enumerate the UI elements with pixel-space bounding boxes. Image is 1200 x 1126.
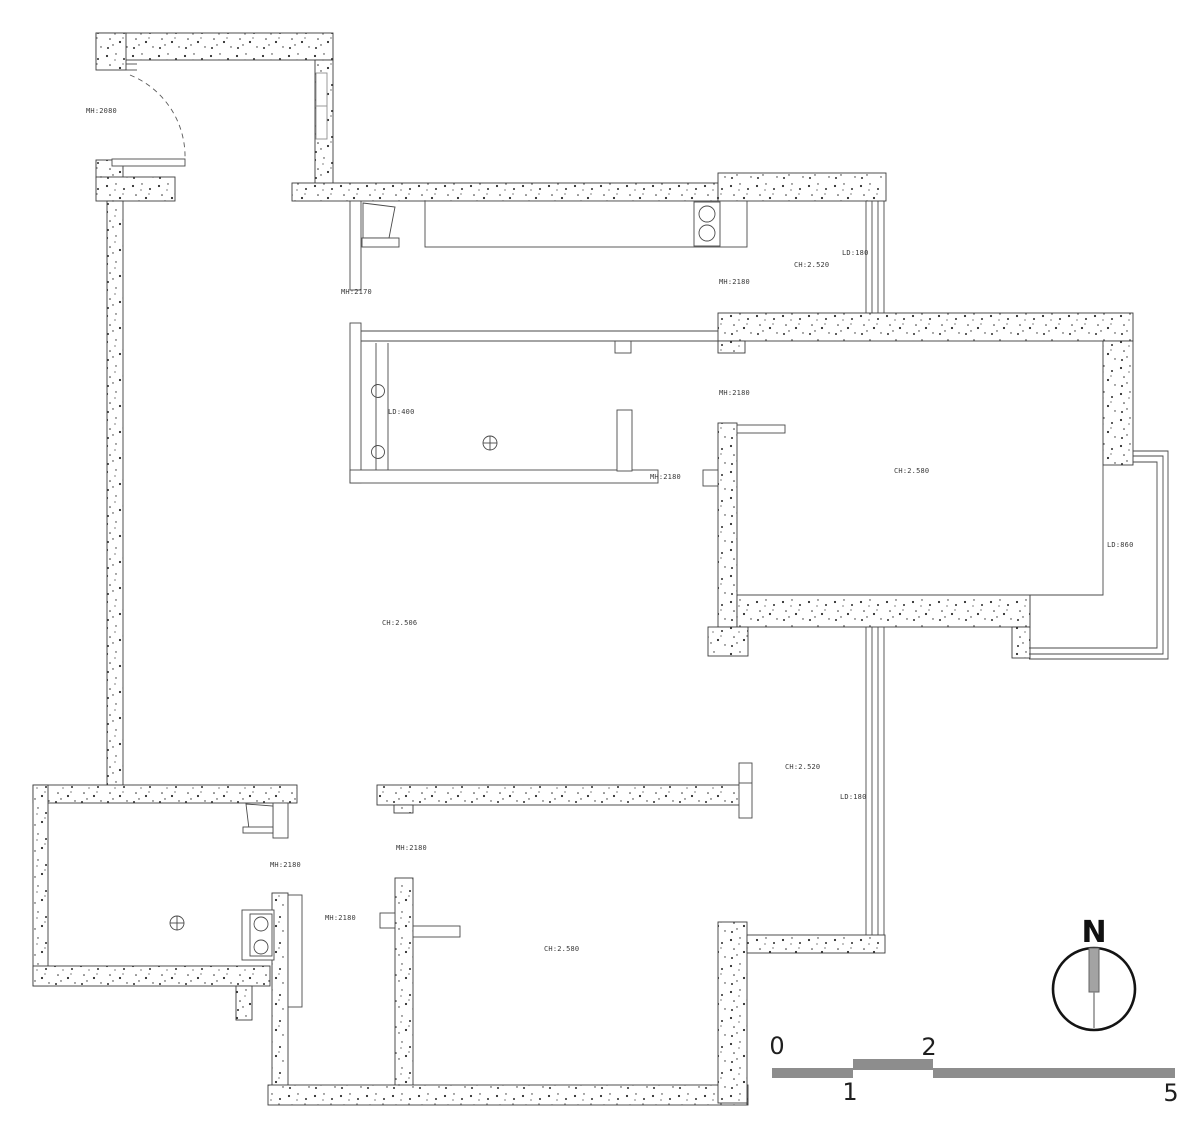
scale-tick-2: 2 — [921, 1035, 936, 1059]
wall-segment — [394, 805, 413, 813]
window-bottom — [866, 627, 884, 935]
bathroom-wall-tab — [615, 341, 631, 353]
bedroom-door-jamb — [703, 470, 718, 486]
bathroom-wall-stub — [617, 410, 632, 471]
kitchen-door-jamb — [350, 201, 361, 290]
compass-pointer — [1089, 948, 1099, 992]
walls-layer — [33, 33, 1133, 1105]
floor-plan-canvas: MH:2080 MH:2170 CH:2.520 LD:180 MH:2180 … — [0, 0, 1200, 1126]
annotation-dining-ceiling-bottom: CH:2.520 — [785, 763, 820, 771]
tall-cabinet — [288, 895, 302, 1007]
scale-tick-0: 0 — [769, 1034, 784, 1058]
annotation-bedroom-ceiling: CH:2.580 — [894, 467, 929, 475]
bathroom-left-wall — [350, 323, 361, 483]
wall-segment — [718, 423, 737, 627]
annotation-window-sill-top: LD:180 — [842, 249, 869, 257]
window-top — [866, 201, 884, 313]
annotation-bay-window-sill: LD:860 — [1107, 541, 1134, 549]
scale-tick-5: 5 — [1163, 1081, 1178, 1105]
north-arrow — [1053, 948, 1135, 1030]
wall-segment — [377, 785, 740, 805]
bedroom-interior-edge — [1030, 465, 1103, 627]
annotation-bedroom-door-height: MH:2180 — [719, 389, 750, 397]
entry-door-leaf — [112, 159, 185, 166]
floor-drain-icon — [170, 916, 184, 930]
annotation-bottom-room-ceiling: CH:2.580 — [544, 945, 579, 953]
hall-shelf — [413, 926, 460, 937]
wall-segment — [33, 785, 297, 803]
wall-segment — [33, 785, 48, 986]
annotation-bottom-left-door: MH:2180 — [270, 861, 301, 869]
annotation-entry-door-height: MH:2080 — [86, 107, 117, 115]
hall-door-jamb — [380, 913, 395, 928]
wall-segment — [737, 595, 1030, 627]
wall-segment — [718, 341, 745, 353]
fixtures-layer — [112, 73, 785, 1007]
annotation-corridor-door-height: MH:2180 — [650, 473, 681, 481]
wall-segment — [718, 313, 1133, 341]
bottom-left-door-jamb — [273, 803, 288, 838]
wall-segment — [718, 173, 886, 201]
glass-door-roller — [372, 385, 385, 398]
wall-segment — [708, 627, 748, 656]
wall-segment — [1012, 627, 1030, 658]
annotation-door-height-top: MH:2180 — [719, 278, 750, 286]
wall-segment — [33, 966, 270, 986]
wall-segment — [236, 986, 252, 1020]
scale-tick-1: 1 — [842, 1080, 857, 1104]
annotation-kitchen-door-height: MH:2170 — [341, 288, 372, 296]
entry-door-arc — [130, 75, 185, 159]
annotation-living-ceiling: CH:2.506 — [382, 619, 417, 627]
wall-segment — [96, 177, 175, 201]
wall-segment — [718, 922, 747, 1103]
annotation-bottom-center-door: MH:2180 — [396, 844, 427, 852]
kitchen-door-leaf — [363, 203, 395, 238]
wall-segment — [292, 183, 718, 201]
annotation-bath-window-sill: LD:400 — [388, 408, 415, 416]
wall-segment — [96, 33, 333, 60]
wall-segment — [747, 935, 885, 953]
wall-segment — [96, 33, 126, 70]
north-label: N — [1081, 918, 1106, 948]
scale-bar-segment — [772, 1068, 853, 1078]
bay-window-lines — [1029, 451, 1168, 659]
scale-bar — [772, 1059, 1175, 1078]
glass-door-roller — [372, 446, 385, 459]
stove-box — [694, 202, 720, 246]
dining-door-jamb — [739, 763, 752, 818]
annotation-hall-door: MH:2180 — [325, 914, 356, 922]
stove2-inner — [250, 914, 272, 956]
annotation-window-sill-bottom: LD:180 — [840, 793, 867, 801]
kitchen-door-sill — [362, 238, 399, 247]
floor-drain-icon — [483, 436, 497, 450]
bathroom-bottom-wall — [350, 470, 658, 483]
wall-segment — [1103, 341, 1133, 465]
bedroom-shelf — [737, 425, 785, 433]
wall-segment — [268, 1085, 748, 1105]
wall-segment — [107, 201, 123, 790]
scale-bar-segment — [933, 1068, 1175, 1078]
annotation-dining-ceiling-top: CH:2.520 — [794, 261, 829, 269]
bottom-left-door-sill — [243, 827, 273, 833]
floor-plan-drawing — [0, 0, 1200, 1126]
wall-segment — [395, 878, 413, 1103]
